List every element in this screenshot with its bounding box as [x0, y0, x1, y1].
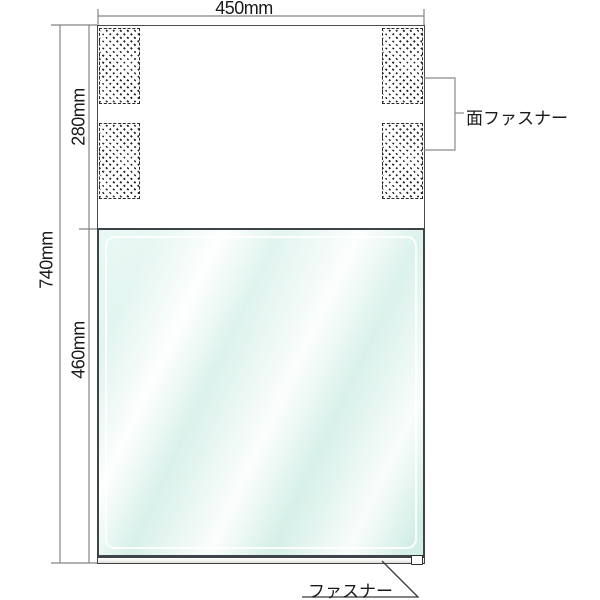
panel-top-section	[97, 25, 425, 228]
velcro-callout-bracket	[424, 78, 455, 150]
velcro-pad-bottom-right	[382, 123, 423, 199]
velcro-pad-top-left	[99, 28, 140, 104]
dim-width-label: 450mm	[215, 0, 273, 19]
dim-height-total-label: 740mm	[37, 231, 58, 289]
clear-window	[97, 228, 425, 557]
dim-window-height-label: 460mm	[69, 321, 90, 379]
dim-upper-height-label: 280mm	[69, 88, 90, 146]
zipper-strip	[97, 557, 425, 564]
window-glare	[105, 236, 417, 549]
zipper-pull-icon	[411, 555, 423, 565]
zipper-callout-label: ファスナー	[308, 577, 393, 600]
velcro-callout-label: 面ファスナー	[466, 104, 568, 129]
velcro-pad-top-right	[382, 28, 423, 104]
velcro-pad-bottom-left	[99, 123, 140, 199]
diagram-canvas: 450mm 740mm 280mm 460mm 面ファスナー ファスナー	[0, 0, 600, 600]
